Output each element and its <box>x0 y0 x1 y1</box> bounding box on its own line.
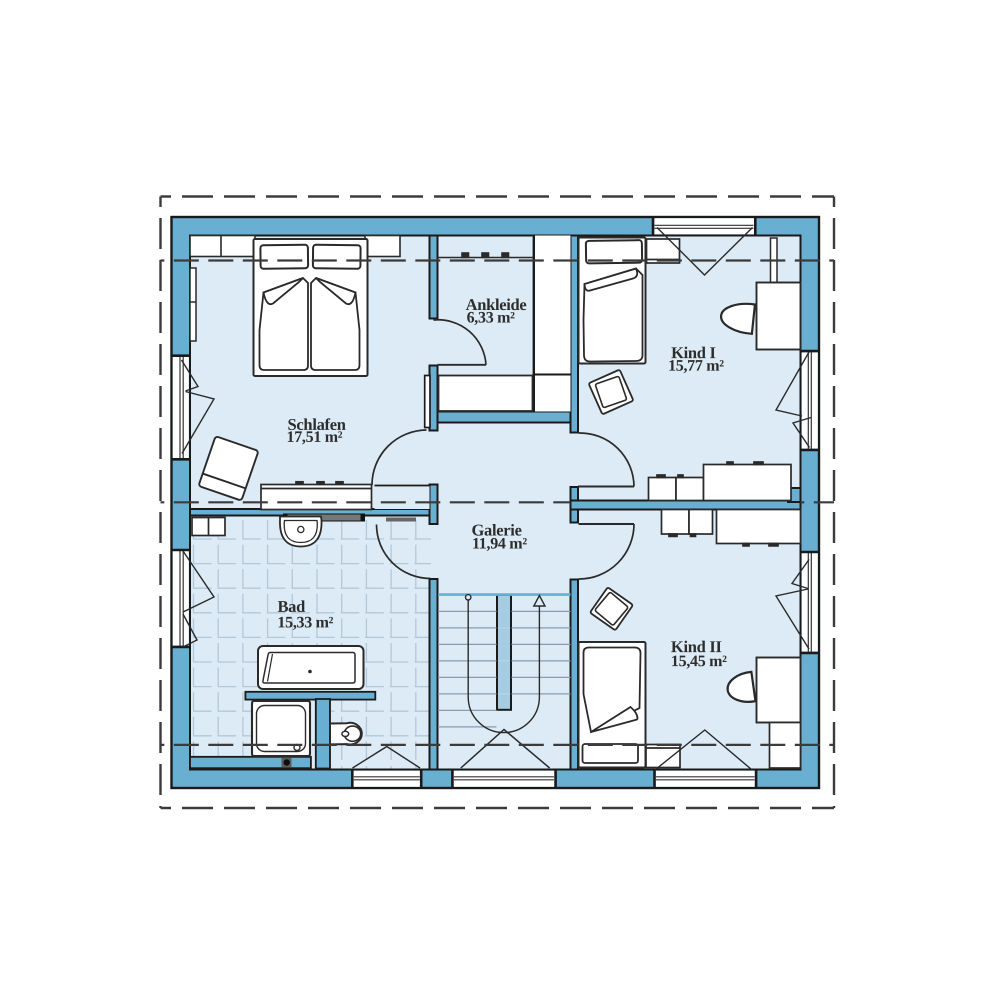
svg-text:17,51 m²: 17,51 m² <box>287 429 343 446</box>
svg-text:15,45 m²: 15,45 m² <box>671 653 727 670</box>
svg-text:11,94 m²: 11,94 m² <box>472 535 527 552</box>
svg-text:6,33 m²: 6,33 m² <box>467 309 516 326</box>
svg-text:15,77 m²: 15,77 m² <box>668 358 724 375</box>
svg-text:Bad: Bad <box>277 597 305 616</box>
svg-text:15,33 m²: 15,33 m² <box>277 614 333 631</box>
